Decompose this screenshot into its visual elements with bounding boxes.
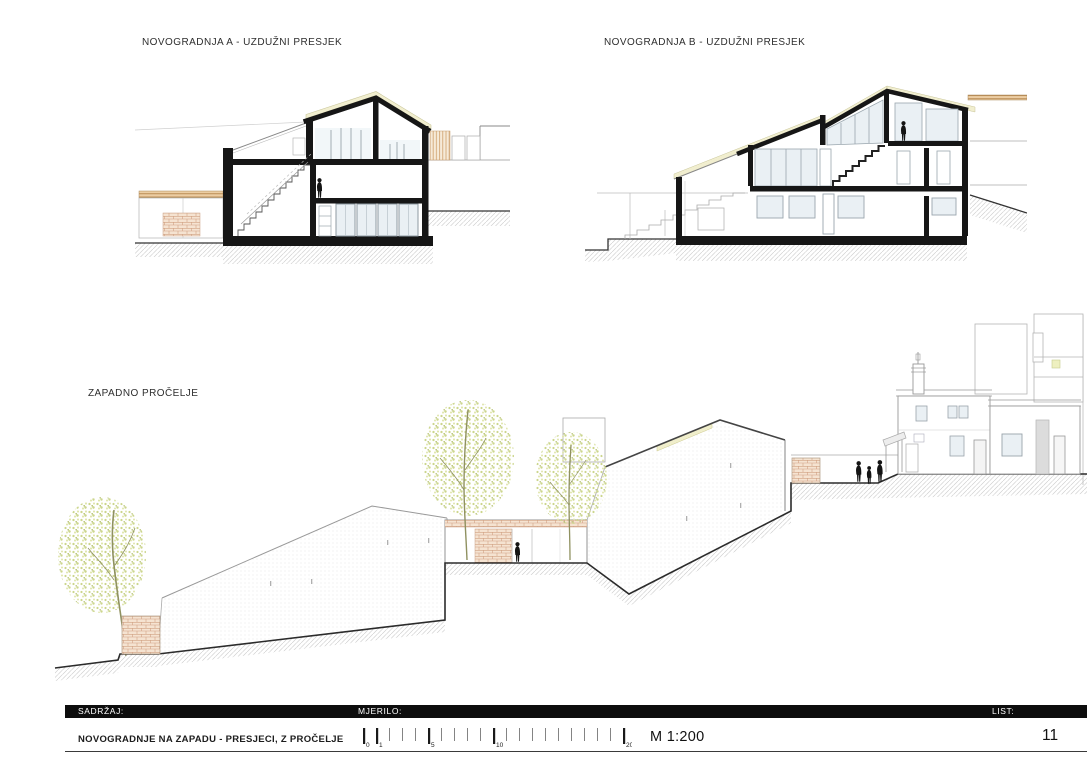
section-a-right-cladding: [430, 131, 480, 160]
section-a-stair: [238, 154, 331, 236]
sheet-title: NOVOGRADNJE NA ZAPADU - PRESJECI, Z PROČ…: [78, 734, 344, 745]
section-a-glazing: [315, 128, 420, 159]
section-a-garage: [139, 191, 223, 238]
title-block-rule: [65, 751, 1087, 752]
existing-house-cluster: [883, 314, 1083, 474]
section-b-stair: [833, 146, 885, 186]
scale-bar: 0151020: [360, 726, 632, 753]
svg-text:5: 5: [431, 742, 435, 749]
sheet-number: 11: [1042, 727, 1058, 745]
label-section-b: NOVOGRADNJA B - UZDUŽNI PRESJEK: [604, 37, 805, 48]
content-label: SADRŽAJ:: [78, 706, 124, 716]
svg-text:1: 1: [379, 742, 383, 749]
svg-text:10: 10: [496, 742, 504, 749]
drawing-section-b: [585, 63, 1027, 268]
scale-value: M 1:200: [650, 729, 705, 745]
section-a-doors: [336, 204, 418, 236]
svg-text:0: 0: [366, 742, 370, 749]
svg-text:20: 20: [626, 742, 632, 749]
title-block-bar: SADRŽAJ: MJERILO: LIST:: [65, 705, 1087, 718]
drawing-section-a: [135, 78, 515, 276]
label-section-a: NOVOGRADNJA A - UZDUŽNI PRESJEK: [142, 37, 342, 48]
people-group: [856, 460, 883, 484]
person-figure: [317, 178, 322, 198]
retaining-brick-block: [122, 616, 160, 654]
scale-label: MJERILO:: [358, 706, 402, 716]
drawing-west-elevation: [40, 310, 1087, 690]
sheet-label: LIST:: [992, 706, 1014, 716]
drawing-sheet: NOVOGRADNJA A - UZDUŽNI PRESJEK NOVOGRAD…: [0, 0, 1087, 768]
